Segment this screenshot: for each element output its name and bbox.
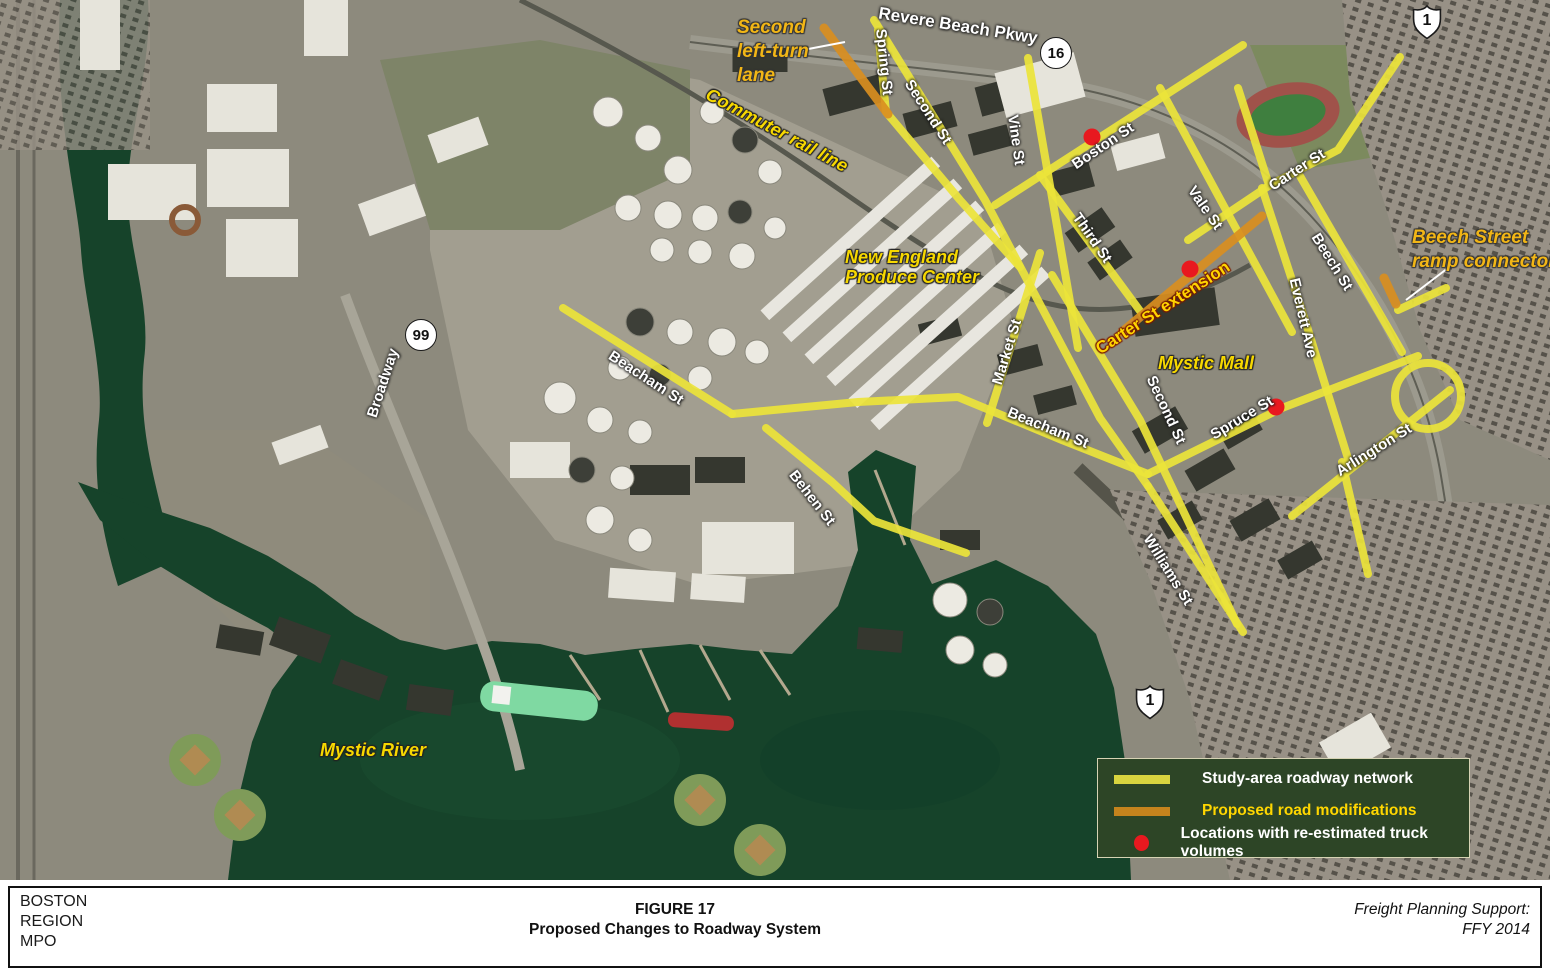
legend-dot-icon: [1134, 835, 1149, 851]
figure-17-map-page: Revere Beach PkwySpring StSecond StVine …: [0, 0, 1550, 974]
aerial-map: Revere Beach PkwySpring StSecond StVine …: [0, 0, 1550, 880]
legend-line-swatch: [1114, 807, 1170, 816]
legend-label: Proposed road modifications: [1202, 802, 1416, 820]
truck-volume-dot-spruce-st-location: [1268, 399, 1285, 416]
truck-volume-dot-carter-ext-location: [1182, 261, 1199, 278]
map-canvas: [0, 0, 1550, 880]
support-block: Freight Planning Support: FFY 2014: [1354, 900, 1530, 940]
legend-item-2: Locations with re-estimated truck volume…: [1098, 827, 1469, 859]
org-name: BOSTON REGION MPO: [20, 892, 87, 952]
legend-label: Study-area roadway network: [1202, 770, 1413, 788]
truck-volume-dot-boston-st-location: [1084, 129, 1101, 146]
org-line: BOSTON: [20, 892, 87, 912]
legend-item-1: Proposed road modifications: [1098, 795, 1469, 827]
legend-label: Locations with re-estimated truck volume…: [1181, 825, 1469, 861]
legend-line-swatch: [1114, 775, 1170, 784]
support-line: Freight Planning Support:: [1354, 900, 1530, 920]
legend-item-0: Study-area roadway network: [1098, 763, 1469, 795]
map-legend: Study-area roadway networkProposed road …: [1097, 758, 1470, 858]
support-line: FFY 2014: [1354, 920, 1530, 940]
figure-title-block: FIGURE 17 Proposed Changes to Roadway Sy…: [375, 900, 975, 940]
org-line: REGION: [20, 912, 87, 932]
caption-bar: BOSTON REGION MPO FIGURE 17 Proposed Cha…: [0, 880, 1550, 974]
figure-label: FIGURE 17: [375, 900, 975, 920]
org-line: MPO: [20, 932, 87, 952]
figure-title: Proposed Changes to Roadway System: [375, 920, 975, 940]
